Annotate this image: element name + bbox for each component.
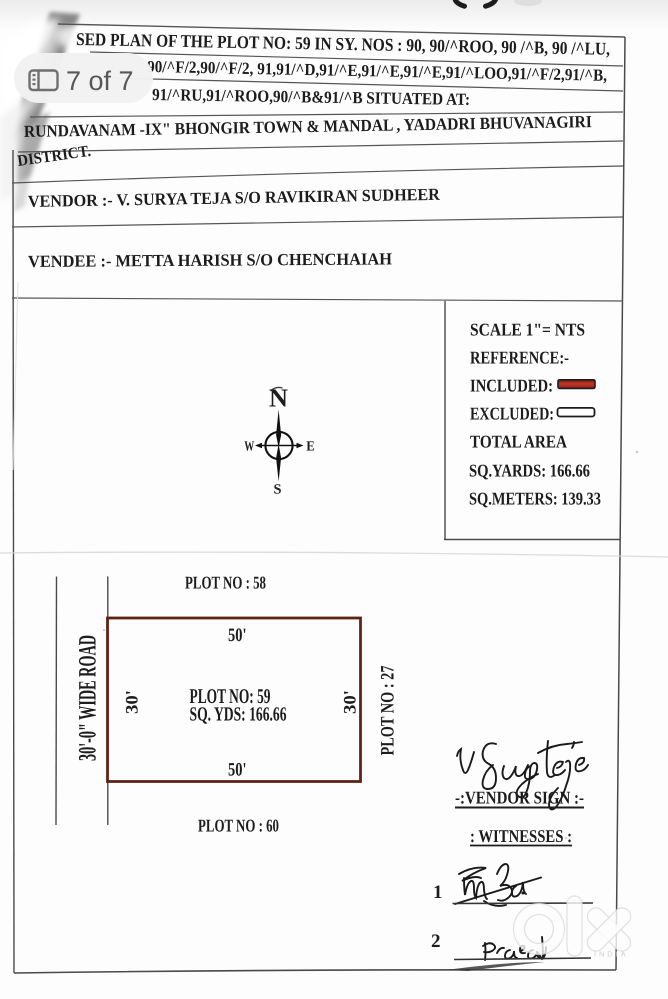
svg-text:SQ.METERS: 139.33: SQ.METERS: 139.33 [469, 489, 601, 509]
svg-text:TOTAL AREA: TOTAL AREA [470, 432, 567, 452]
svg-text:PLOT NO : 58: PLOT NO : 58 [185, 573, 266, 593]
svg-text:50': 50' [228, 760, 247, 781]
svg-text:INCLUDED:: INCLUDED: [470, 376, 553, 396]
svg-text:2: 2 [431, 931, 441, 952]
svg-text:S: S [274, 483, 282, 498]
svg-text:PLOT NO : 27: PLOT NO : 27 [378, 665, 399, 755]
svg-text:E: E [306, 440, 315, 455]
svg-text:50': 50' [228, 625, 247, 646]
svg-text:: WITNESSES :: : WITNESSES : [470, 826, 572, 846]
svg-text:7 of 7: 7 of 7 [66, 66, 134, 96]
svg-text:30': 30' [122, 690, 142, 714]
svg-text:SQ.YARDS: 166.66: SQ.YARDS: 166.66 [469, 461, 590, 481]
svg-text:30': 30' [340, 690, 360, 714]
svg-text:1: 1 [433, 882, 443, 903]
svg-text:REFERENCE:-: REFERENCE:- [470, 348, 569, 368]
svg-text:W: W [244, 440, 254, 455]
svg-text:VENDEE :- METTA HARISH S/O: VENDEE :- METTA HARISH S/O CHENCHAIAH [28, 249, 392, 271]
svg-text:PLOT NO : 60: PLOT NO : 60 [198, 816, 279, 836]
svg-text:INDIA: INDIA [594, 950, 629, 959]
svg-text:SCALE 1"= NTS: SCALE 1"= NTS [470, 320, 585, 340]
svg-text:-:VENDOR SIGN :-: -:VENDOR SIGN :- [455, 788, 584, 808]
svg-text:SQ. YDS: 166.66: SQ. YDS: 166.66 [190, 704, 287, 726]
svg-text:30'-0" WIDE ROAD: 30'-0" WIDE ROAD [75, 635, 102, 761]
svg-text:EXCLUDED:: EXCLUDED: [470, 404, 554, 424]
